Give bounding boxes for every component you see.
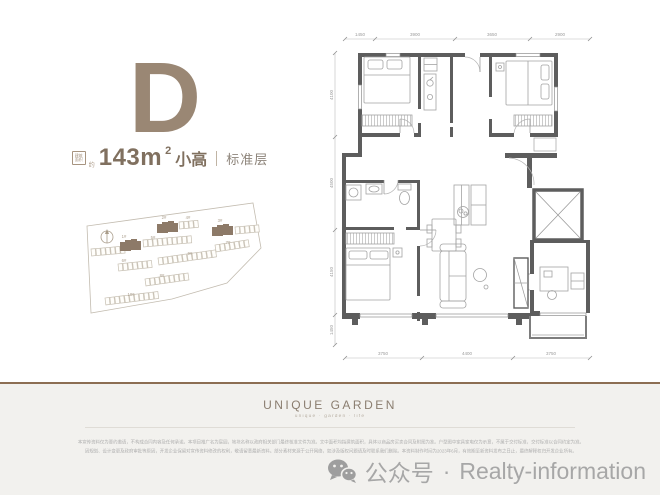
- brand-name: UNIQUE GARDEN: [0, 398, 660, 412]
- spec-divider: [216, 151, 217, 166]
- ac-platform: [534, 138, 556, 151]
- floor-type-label: 标准层: [226, 149, 268, 168]
- highlighted-building-1: [120, 239, 141, 251]
- watermark: 公众号 · Realty-information: [327, 454, 646, 488]
- bed-top-left: [364, 57, 410, 103]
- svg-text:4400: 4400: [462, 351, 473, 356]
- svg-text:8#: 8#: [160, 273, 165, 278]
- bed-top-right: [496, 61, 552, 105]
- unit-spec: 建筑 面积 约 143m 2 小高 标准层: [40, 144, 300, 172]
- svg-text:9#: 9#: [188, 251, 193, 256]
- coffee-table: [474, 269, 487, 282]
- area-type-label: 小高: [175, 146, 207, 170]
- area-icon-text-2: 面积: [75, 158, 83, 163]
- elevator-shaft: [534, 190, 582, 240]
- svg-text:4150: 4150: [329, 266, 334, 277]
- unit-letter: D: [100, 48, 230, 148]
- poster: D 建筑 面积 约 143m 2 小高 标准层: [0, 0, 660, 495]
- svg-text:3650: 3650: [487, 32, 498, 37]
- balcony: [530, 316, 586, 338]
- svg-text:3900: 3900: [410, 32, 421, 37]
- watermark-separator: ·: [443, 458, 451, 485]
- svg-text:3750: 3750: [378, 351, 389, 356]
- approx-label: 约: [89, 160, 95, 172]
- footer: UNIQUE GARDEN unique · garden · life 本宣传…: [0, 384, 660, 495]
- svg-text:4#: 4#: [186, 215, 191, 220]
- area-superscript: 2: [165, 145, 171, 157]
- radiator-2: [514, 115, 552, 126]
- unit-blocks: [91, 220, 259, 305]
- area-icon: 建筑 面积: [72, 151, 86, 165]
- dining-table: [427, 219, 461, 251]
- svg-text:10#: 10#: [128, 292, 136, 297]
- floor-lamp: [484, 285, 488, 289]
- watermark-platform: 公众号: [365, 454, 434, 488]
- svg-text:3750: 3750: [546, 351, 557, 356]
- highlighted-building-2: [157, 221, 178, 233]
- door-swings: [384, 57, 534, 290]
- svg-text:7#: 7#: [226, 240, 231, 245]
- svg-text:2900: 2900: [555, 32, 566, 37]
- svg-text:4100: 4100: [329, 89, 334, 100]
- sofa: [440, 244, 466, 308]
- bed-master: [346, 248, 402, 300]
- footer-divider: [85, 427, 575, 428]
- storage-cabinets: [454, 185, 486, 225]
- wardrobe: [346, 233, 394, 244]
- watermark-account: Realty-information: [459, 458, 646, 485]
- radiator-1: [362, 115, 412, 126]
- svg-text:3#: 3#: [218, 218, 223, 223]
- floor-plan: 1450 3900 3650 2900 3750 4400 3750 4100 …: [328, 27, 596, 367]
- bathroom-fixtures: [346, 184, 411, 205]
- site-plan: 1# 2# 3# 4# 5# 6# 7# 8# 9# 10#: [78, 196, 266, 326]
- svg-text:1#: 1#: [122, 234, 127, 239]
- wechat-icon: [327, 458, 357, 484]
- area-value: 143m: [99, 144, 162, 172]
- north-compass-icon: [101, 229, 113, 243]
- disclaimer-line-1: 本宣传资料仅为要约邀请，不构成合同内容及任何承诺。本项目推广名为宸园，地块名称以…: [60, 438, 602, 447]
- svg-text:5#: 5#: [151, 235, 156, 240]
- svg-text:6#: 6#: [122, 258, 127, 263]
- svg-text:1450: 1450: [355, 32, 366, 37]
- svg-text:2#: 2#: [162, 215, 167, 220]
- brand-tagline: unique · garden · life: [66, 414, 594, 419]
- svg-text:4500: 4500: [329, 177, 334, 188]
- kitchen-fixtures: [424, 58, 437, 110]
- stairwell: [514, 258, 528, 308]
- highlighted-building-3: [212, 224, 233, 236]
- svg-text:1450: 1450: [329, 324, 334, 335]
- disclaimer: 本宣传资料仅为要约邀请，不构成合同内容及任何承诺。本项目推广名为宸园，地块名称以…: [60, 438, 602, 455]
- desk: [540, 267, 584, 300]
- plant: [458, 207, 469, 218]
